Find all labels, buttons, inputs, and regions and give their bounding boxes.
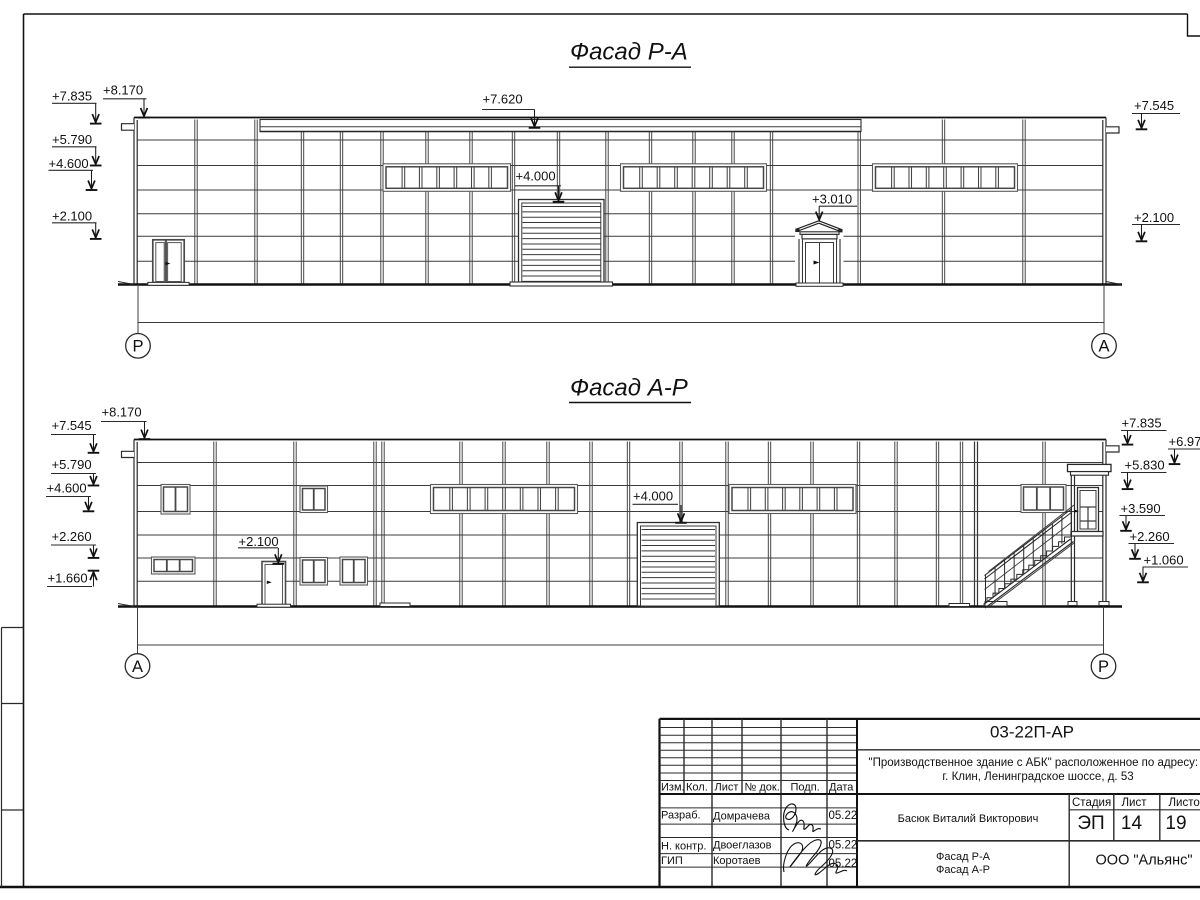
svg-text:+8.170: +8.170: [102, 405, 142, 420]
svg-text:Домрачева: Домрачева: [713, 811, 771, 823]
svg-text:Фасад А-Р: Фасад А-Р: [570, 375, 688, 402]
svg-text:+7.620: +7.620: [483, 92, 523, 107]
svg-text:Разраб.: Разраб.: [661, 810, 701, 822]
svg-text:+4.600: +4.600: [47, 481, 87, 496]
svg-text:Изм.: Изм.: [661, 782, 685, 794]
svg-text:А: А: [1098, 338, 1109, 356]
svg-text:Двоеглазов: Двоеглазов: [713, 840, 772, 852]
svg-text:Дата: Дата: [829, 782, 854, 794]
svg-text:05.22: 05.22: [829, 810, 858, 822]
svg-text:+3.010: +3.010: [812, 192, 852, 207]
svg-text:14: 14: [1121, 813, 1143, 834]
svg-text:+5.830: +5.830: [1125, 458, 1165, 473]
svg-text:Басюк Виталий Викторович: Басюк Виталий Викторович: [898, 813, 1039, 825]
svg-text:Н. контр.: Н. контр.: [661, 841, 706, 853]
svg-text:Лист: Лист: [715, 782, 739, 794]
svg-text:+2.260: +2.260: [52, 529, 92, 544]
svg-text:Лист: Лист: [1122, 797, 1148, 809]
svg-text:Фасад Р-А: Фасад Р-А: [936, 851, 991, 863]
svg-text:А: А: [132, 658, 143, 676]
svg-text:19: 19: [1165, 813, 1186, 834]
svg-text:Кол.: Кол.: [686, 782, 708, 794]
svg-text:Листов: Листов: [1169, 797, 1200, 809]
svg-text:г. Клин, Ленинградское шоссе,: г. Клин, Ленинградское шоссе, д. 53: [942, 771, 1133, 783]
svg-text:+8.170: +8.170: [103, 83, 143, 98]
svg-text:+5.790: +5.790: [52, 457, 92, 472]
svg-text:Стадия: Стадия: [1072, 797, 1111, 809]
svg-text:ЭП: ЭП: [1077, 813, 1104, 834]
svg-text:+1.660: +1.660: [48, 571, 88, 586]
svg-text:Р: Р: [1098, 658, 1109, 676]
svg-text:Фасад А-Р: Фасад А-Р: [936, 864, 990, 876]
svg-text:03-22П-АР: 03-22П-АР: [990, 723, 1074, 742]
svg-text:+2.260: +2.260: [1130, 529, 1170, 544]
svg-text:+5.790: +5.790: [52, 132, 92, 147]
svg-text:Фасад Р-А: Фасад Р-А: [570, 39, 688, 66]
svg-text:+7.545: +7.545: [1134, 98, 1174, 113]
svg-text:05.22: 05.22: [829, 858, 858, 870]
svg-text:+3.590: +3.590: [1121, 501, 1161, 516]
svg-text:+4.000: +4.000: [633, 489, 673, 504]
svg-text:Подп.: Подп.: [791, 782, 820, 794]
svg-text:Р: Р: [132, 338, 143, 356]
svg-text:"Производственное здание с АБК: "Производственное здание с АБК" располож…: [869, 757, 1199, 769]
svg-text:+7.835: +7.835: [52, 89, 92, 104]
svg-text:+4.600: +4.600: [49, 156, 89, 171]
svg-text:+7.545: +7.545: [52, 418, 92, 433]
svg-text:ГИП: ГИП: [661, 855, 683, 867]
svg-text:Коротаев: Коротаев: [713, 855, 761, 867]
svg-text:ООО "Альянс": ООО "Альянс": [1096, 853, 1193, 869]
svg-text:+2.100: +2.100: [239, 534, 279, 549]
svg-text:+7.835: +7.835: [1122, 416, 1162, 431]
svg-text:+6.97: +6.97: [1169, 434, 1200, 449]
svg-text:+4.000: +4.000: [516, 169, 556, 184]
svg-text:№ док.: № док.: [745, 782, 780, 794]
svg-text:+2.100: +2.100: [52, 209, 92, 224]
svg-text:+2.100: +2.100: [1134, 210, 1174, 225]
svg-text:+1.060: +1.060: [1144, 553, 1184, 568]
